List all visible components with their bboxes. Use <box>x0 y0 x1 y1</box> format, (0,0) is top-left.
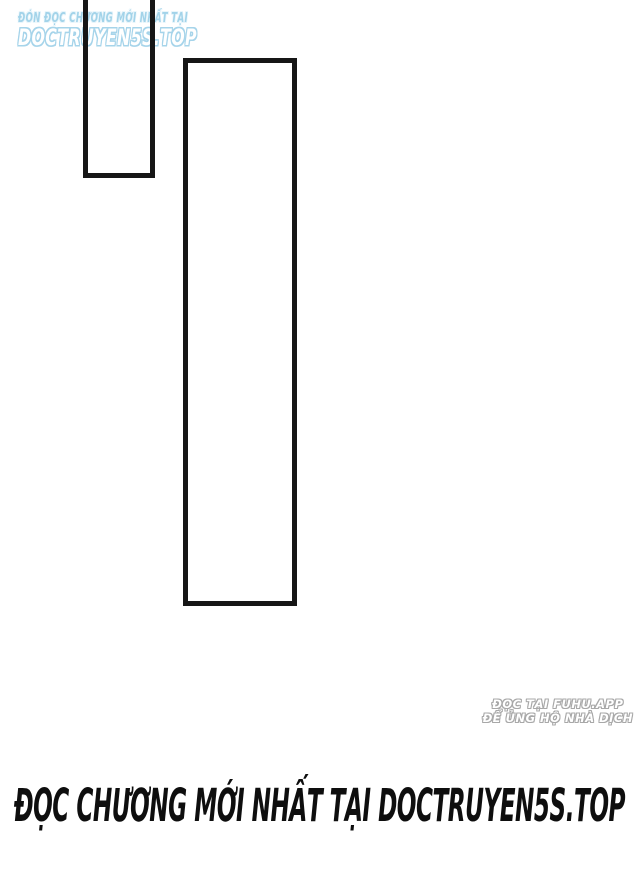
comic-panel-top <box>83 0 155 178</box>
footer-promo-text: ĐỌC CHƯƠNG MỚI NHẤT TẠI DOCTRUYEN5S.TOP <box>14 781 625 831</box>
manga-page: ĐÓN ĐỌC CHƯƠNG MỚI NHẤT TẠI DOCTRUYEN5S.… <box>0 0 640 870</box>
translator-credit-line-1: ĐỌC TẠI FUHU.APP <box>483 697 633 711</box>
translator-credit: ĐỌC TẠI FUHU.APP ĐỂ ỦNG HỘ NHÀ DỊCH <box>483 697 633 725</box>
comic-panel-tall <box>183 58 297 606</box>
translator-credit-line-2: ĐỂ ỦNG HỘ NHÀ DỊCH <box>483 711 633 725</box>
